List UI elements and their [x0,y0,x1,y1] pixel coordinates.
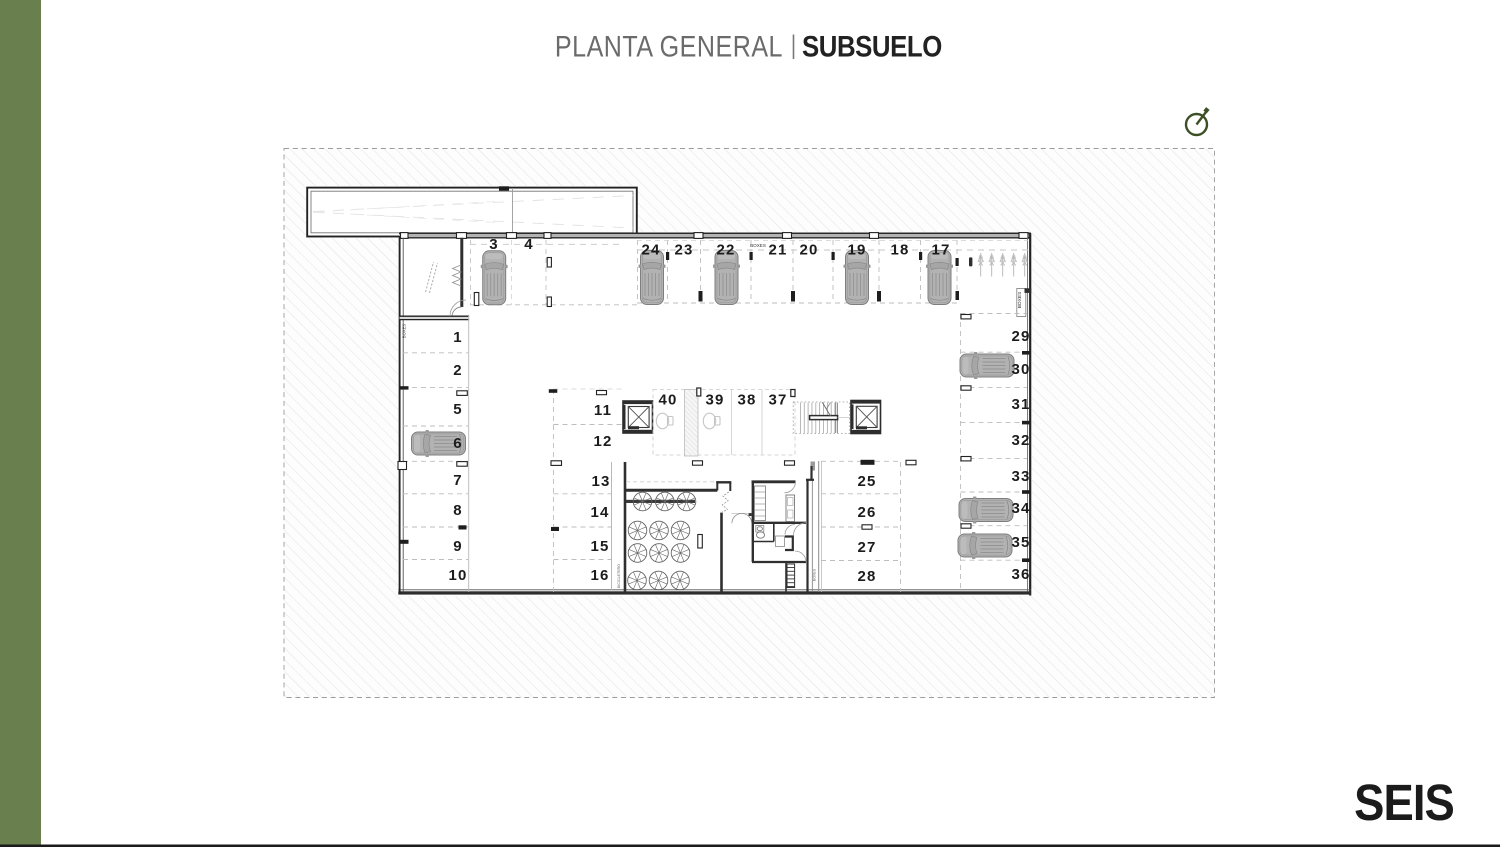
svg-text:6: 6 [453,435,463,452]
svg-text:36: 36 [1011,566,1030,583]
svg-text:29: 29 [1011,328,1030,345]
svg-text:BOXES: BOXES [402,324,407,339]
svg-text:10: 10 [448,567,467,584]
svg-text:28: 28 [857,568,876,585]
svg-text:33: 33 [1011,468,1030,485]
svg-text:4: 4 [524,236,534,253]
svg-text:16: 16 [590,567,609,584]
svg-text:35: 35 [1011,534,1030,551]
svg-text:27: 27 [857,539,876,556]
svg-text:BOXES: BOXES [813,568,817,581]
svg-text:37: 37 [768,392,787,409]
svg-text:19: 19 [847,242,866,259]
svg-text:26: 26 [857,504,876,521]
svg-text:34: 34 [1011,500,1030,517]
svg-text:9: 9 [453,538,463,555]
svg-text:23: 23 [674,242,693,259]
svg-text:31: 31 [1011,396,1030,413]
svg-text:32: 32 [1011,432,1030,449]
svg-text:PLANTA GENERAL: PLANTA GENERAL [555,30,783,63]
svg-text:1: 1 [453,329,463,346]
svg-text:22: 22 [716,242,735,259]
svg-text:12: 12 [593,433,612,450]
svg-text:11: 11 [594,402,612,419]
svg-text:25: 25 [857,473,876,490]
svg-text:15: 15 [590,538,609,555]
svg-text:BOXES: BOXES [750,243,766,248]
svg-text:24: 24 [641,242,660,259]
svg-text:5: 5 [453,401,463,418]
svg-text:38: 38 [737,392,756,409]
svg-text:17: 17 [931,242,950,259]
svg-text:BOXES: BOXES [1017,292,1023,309]
svg-text:40: 40 [658,392,677,409]
svg-text:39: 39 [705,392,724,409]
svg-text:7: 7 [453,472,463,489]
svg-text:18: 18 [890,242,909,259]
svg-text:2: 2 [453,362,463,379]
svg-text:3: 3 [489,236,499,253]
svg-text:8: 8 [453,502,463,519]
svg-text:BICICLETERO: BICICLETERO [617,564,621,588]
svg-text:14: 14 [590,504,609,521]
svg-text:30: 30 [1011,361,1030,378]
svg-text:20: 20 [799,242,818,259]
svg-text:13: 13 [591,473,610,490]
svg-text:SUBSUELO: SUBSUELO [802,30,942,63]
svg-text:SEIS: SEIS [1354,775,1454,832]
svg-text:21: 21 [768,242,787,259]
